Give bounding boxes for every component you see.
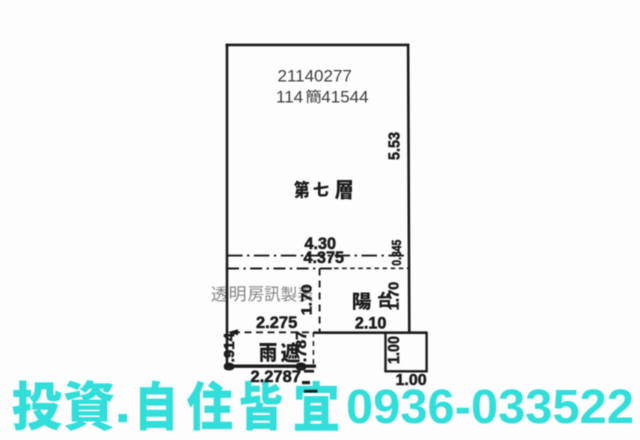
svg-text:1.70: 1.70: [298, 284, 315, 315]
svg-text:4.375: 4.375: [304, 249, 345, 267]
svg-text:1.70: 1.70: [385, 282, 402, 311]
svg-text:114: 114: [276, 88, 303, 107]
svg-text:0.345: 0.345: [389, 240, 404, 266]
svg-text:21140277: 21140277: [278, 67, 352, 86]
svg-text:1.00: 1.00: [386, 336, 403, 364]
svg-text:0.914: 0.914: [222, 333, 238, 371]
svg-text:0936-033522: 0936-033522: [346, 380, 634, 434]
svg-text:2.10: 2.10: [355, 315, 387, 333]
svg-text:5.53: 5.53: [387, 132, 404, 160]
svg-text:41544: 41544: [321, 88, 368, 107]
svg-text:1.00: 1.00: [396, 372, 427, 389]
svg-text:2.275: 2.275: [256, 314, 297, 332]
svg-text:0.787: 0.787: [294, 331, 310, 371]
